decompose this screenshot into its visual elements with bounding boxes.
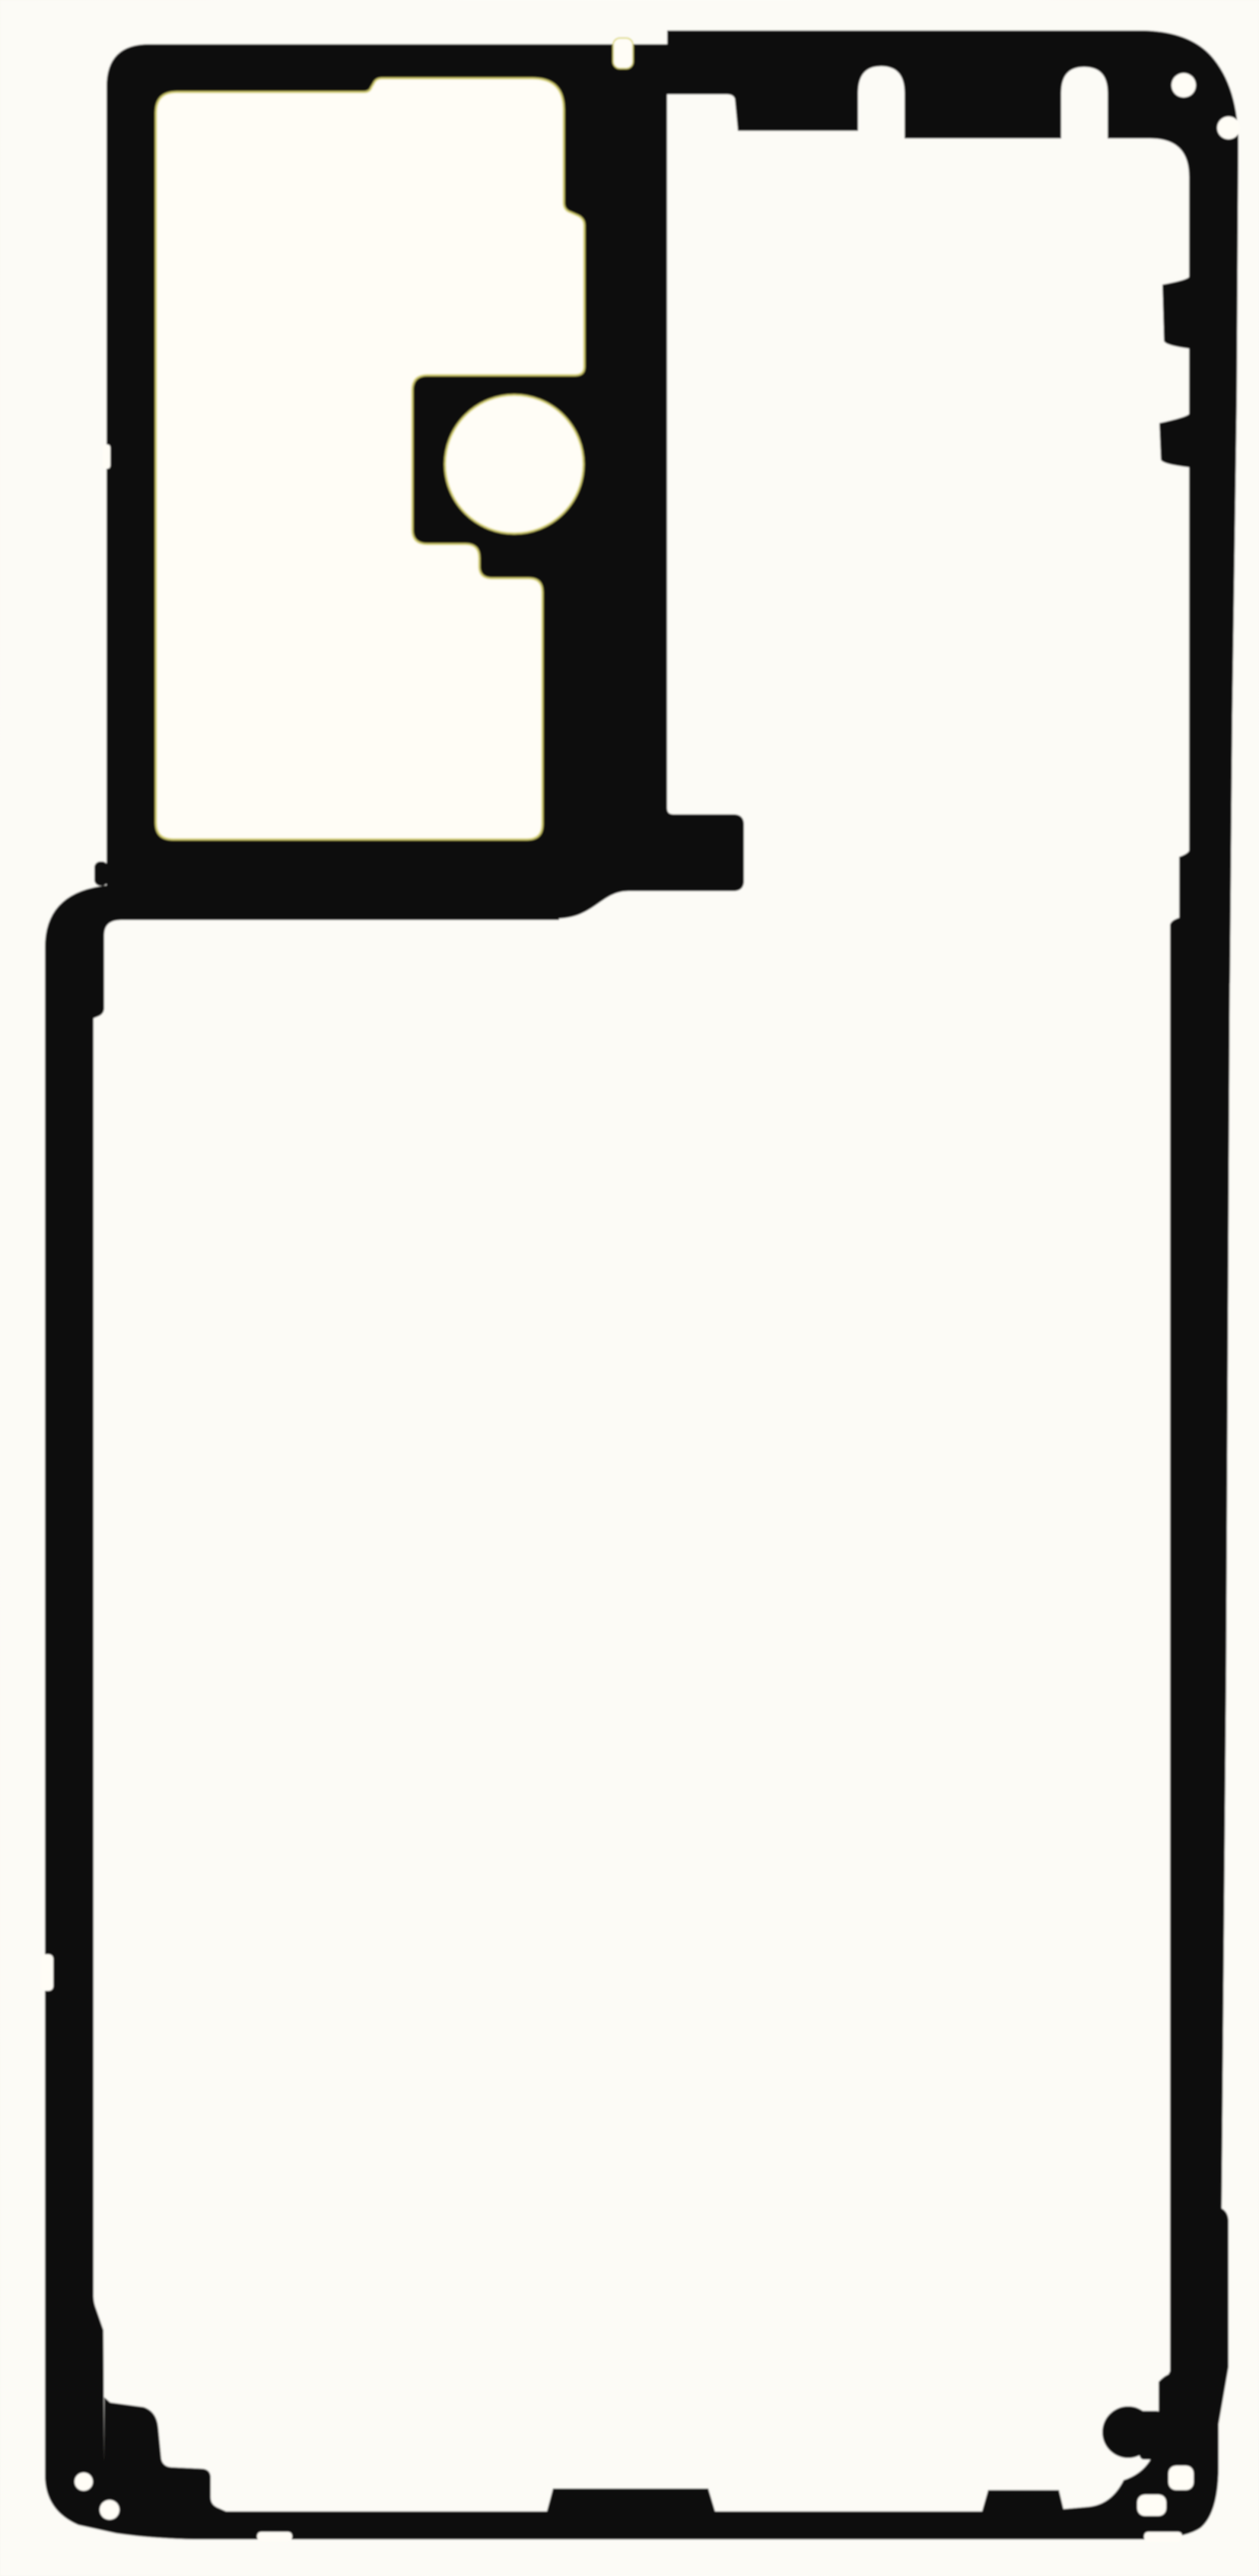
inner-pocket-notch-upper — [1168, 2466, 1194, 2490]
junction-tab — [94, 861, 108, 886]
bottom-edge-nick-left — [257, 2532, 292, 2541]
bottom-edge-nick-right — [1144, 2532, 1182, 2542]
corner-ear-notch-top — [1172, 73, 1196, 97]
photo-svg — [0, 0, 1259, 2576]
corner-ear-notch-side — [1217, 116, 1240, 139]
foot-notch-lower — [100, 2500, 119, 2520]
lower-left-edge-nick — [40, 1954, 53, 1991]
adhesive-gasket-photo — [0, 0, 1259, 2576]
corner-blob-connector — [1140, 2411, 1161, 2460]
sticker-shapes — [0, 0, 1259, 2576]
inner-pocket-notch-lower — [1137, 2495, 1166, 2516]
left-edge-nick — [103, 444, 110, 469]
camera-lens-hole — [445, 395, 583, 533]
top-step-slit-notch — [613, 38, 633, 68]
foot-notch-upper — [75, 2473, 93, 2491]
